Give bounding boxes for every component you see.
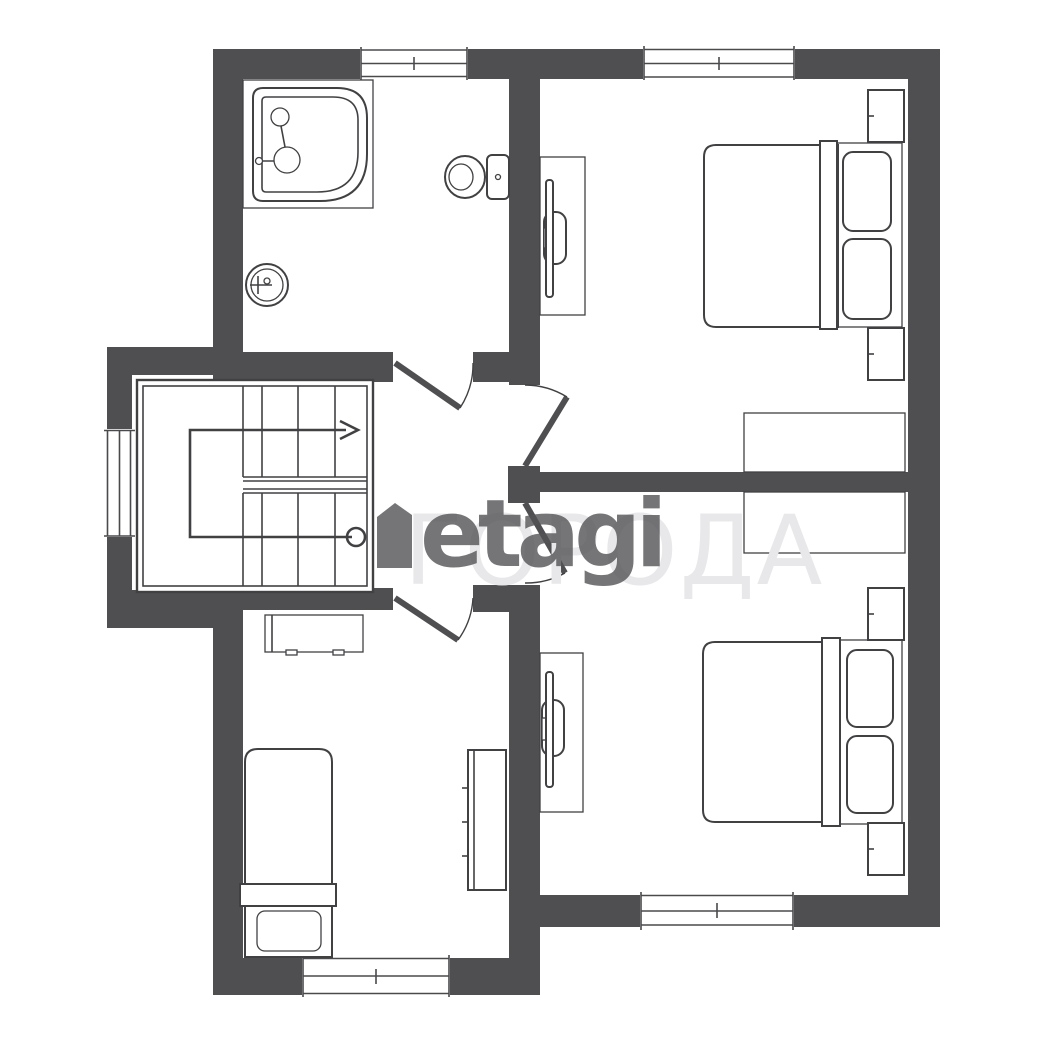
desk-foot: [286, 650, 297, 655]
room-bottom-left: [240, 615, 506, 957]
door-bedroom-top: [525, 385, 567, 466]
window-room-bottom-left: [302, 955, 450, 998]
pillow: [843, 152, 891, 231]
window-bedroom-bottom: [640, 892, 794, 930]
pillow: [257, 911, 321, 951]
staircase: [137, 380, 373, 592]
door-swing-arc: [460, 363, 473, 408]
window-bedroom-top: [643, 46, 795, 80]
wall-top: [213, 49, 940, 79]
door-bathroom: [395, 363, 473, 408]
window-stair-tower: [104, 429, 135, 537]
desk: [265, 615, 363, 652]
pillow: [843, 239, 891, 319]
tv-screen: [546, 672, 553, 787]
pillow: [847, 650, 893, 727]
door-leaf: [525, 397, 567, 466]
door-leaf: [395, 363, 460, 408]
double-bed-mattress: [703, 642, 824, 822]
watermark: ГОРОДА etagi: [377, 480, 824, 607]
window-bathroom: [360, 47, 468, 80]
wall-left-lower: [213, 590, 243, 995]
desk-foot: [333, 650, 344, 655]
bed-headboard-bar: [820, 141, 837, 329]
single-bed-mattress: [245, 749, 332, 884]
floor-plan-drawing: ГОРОДА etagi: [0, 0, 1042, 1042]
sink-drain: [264, 278, 270, 284]
toilet-bowl-inner: [449, 164, 473, 190]
wall-left-upper: [213, 49, 243, 382]
bathtub: [253, 88, 367, 201]
wall-divider-bottom-rooms: [509, 585, 540, 995]
wall-bathroom-bottom-left: [243, 352, 393, 382]
pillow: [847, 736, 893, 813]
bathtub-faucet-head: [274, 147, 300, 173]
bathroom: [243, 80, 509, 306]
bathtub-faucet-valve: [256, 158, 263, 165]
tv-screen: [546, 180, 553, 297]
floor-plan-canvas: ГОРОДА etagi: [0, 0, 1042, 1042]
toilet-button: [496, 175, 501, 180]
watermark-house-icon: [377, 503, 412, 568]
door-swing-arc: [525, 385, 567, 397]
bedroom-top-right: [540, 90, 905, 472]
single-bed-bar: [240, 884, 336, 906]
watermark-logo-text: etagi: [420, 480, 662, 589]
wall-right: [908, 49, 940, 927]
double-bed-mattress: [704, 145, 838, 327]
wardrobe: [744, 413, 905, 472]
wall-divider-bath-bedroom: [509, 49, 540, 385]
bathtub-faucet-knob: [271, 108, 289, 126]
bed-headboard-bar: [822, 638, 840, 826]
stair-enclosure-outer: [137, 380, 373, 592]
